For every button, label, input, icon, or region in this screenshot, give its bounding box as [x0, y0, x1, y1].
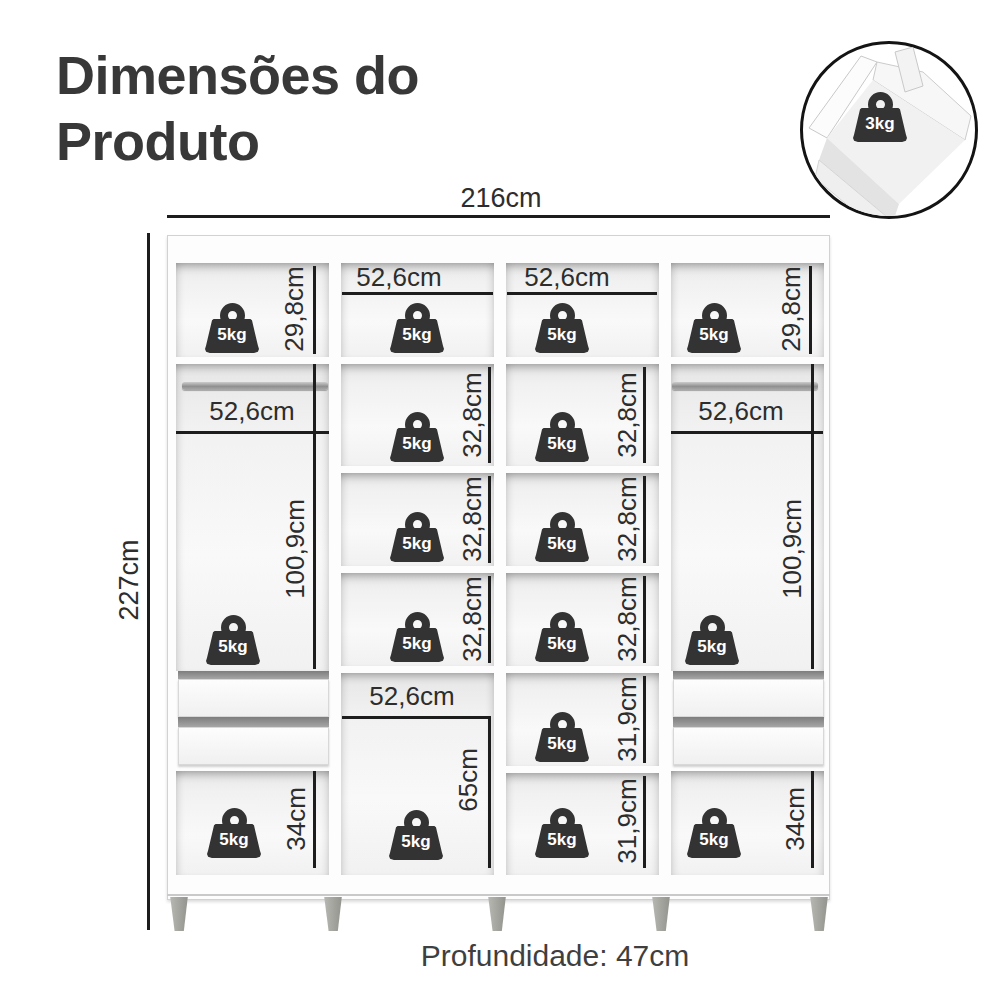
dim-row1-width: 52,6cm	[356, 262, 441, 293]
dim-row1-right-height: 29,8cm	[776, 266, 807, 351]
weight-icon: 5kg	[390, 412, 444, 462]
weight-icon: 5kg	[390, 303, 444, 353]
weight-icon: 5kg	[207, 808, 261, 858]
weight-label: 5kg	[390, 634, 444, 654]
dim-line	[167, 215, 830, 218]
weight-label: 5kg	[390, 434, 444, 454]
dim-line	[313, 364, 316, 669]
weight-icon: 5kg	[205, 303, 259, 353]
weight-label: 3kg	[853, 114, 907, 134]
weight-icon: 5kg	[535, 512, 589, 562]
weight-icon: 5kg	[206, 615, 260, 665]
weight-icon: 5kg	[535, 712, 589, 762]
drawer-front	[178, 679, 329, 717]
dim-line	[342, 716, 489, 719]
dim-line	[342, 292, 493, 295]
drawer-gap	[673, 671, 824, 679]
dim-line	[147, 233, 150, 930]
dim-overall-width: 216cm	[460, 183, 541, 214]
dim-line	[488, 367, 491, 463]
drawer-gap	[673, 717, 824, 727]
weight-icon: 5kg	[390, 512, 444, 562]
dim-shelf-height: 32,8cm	[612, 476, 643, 561]
weight-icon: 5kg	[535, 412, 589, 462]
dim-hang-width-right: 52,6cm	[698, 396, 783, 427]
dim-line	[488, 576, 491, 663]
weight-icon: 5kg	[389, 810, 443, 860]
weight-icon: 5kg	[685, 615, 739, 665]
dim-line	[643, 367, 646, 463]
weight-icon: 5kg	[687, 808, 741, 858]
dim-shelf-height: 32,8cm	[612, 576, 643, 661]
dim-line	[643, 676, 646, 763]
dim-line	[488, 716, 491, 868]
wardrobe-leg	[650, 897, 672, 931]
wardrobe-base-edge	[167, 894, 830, 896]
page-title-line1: Dimensões do	[56, 42, 419, 108]
product-dimensions-infographic: Dimensões do Produto 3kg 216cm 227cm	[0, 0, 1000, 1000]
weight-label: 5kg	[390, 325, 444, 345]
depth-label: Profundidade: 47cm	[421, 939, 690, 973]
drawer-gap	[178, 717, 329, 727]
dim-shelf-height: 32,8cm	[457, 372, 488, 457]
weight-icon: 5kg	[687, 303, 741, 353]
dim-row1-width: 52,6cm	[524, 262, 609, 293]
dim-row1-left-height: 29,8cm	[279, 266, 310, 351]
weight-icon: 5kg	[535, 303, 589, 353]
weight-label: 5kg	[685, 637, 739, 657]
weight-label: 5kg	[389, 832, 443, 852]
dim-line	[643, 776, 646, 868]
weight-label: 5kg	[535, 534, 589, 554]
weight-label: 5kg	[535, 734, 589, 754]
wardrobe-leg	[486, 897, 508, 931]
weight-label: 5kg	[687, 325, 741, 345]
dim-lower-height: 65cm	[453, 748, 484, 812]
drawer-front	[178, 727, 329, 765]
dim-line	[811, 364, 814, 669]
dim-shelf-height: 31,9cm	[612, 676, 643, 761]
dim-line	[811, 771, 814, 868]
dim-hang-height-right: 100,9cm	[777, 499, 808, 599]
dim-hang-width-left: 52,6cm	[209, 396, 294, 427]
wardrobe-leg	[808, 897, 830, 931]
page-title: Dimensões do Produto	[56, 42, 419, 174]
weight-label: 5kg	[535, 325, 589, 345]
weight-label: 5kg	[535, 434, 589, 454]
weight-icon: 5kg	[535, 612, 589, 662]
drawer-gap	[178, 671, 329, 679]
page-title-line2: Produto	[56, 108, 419, 174]
weight-label: 5kg	[535, 634, 589, 654]
dim-line	[313, 266, 316, 354]
dim-shelf-height: 32,8cm	[612, 372, 643, 457]
weight-label: 5kg	[390, 534, 444, 554]
wardrobe-leg	[168, 897, 190, 931]
dim-line	[809, 266, 812, 354]
dim-line	[313, 771, 316, 868]
dim-shelf-height: 31,9cm	[612, 778, 643, 863]
weight-label: 5kg	[205, 325, 259, 345]
dim-line	[507, 292, 657, 295]
weight-label: 5kg	[687, 830, 741, 850]
wardrobe-leg	[322, 897, 344, 931]
weight-label: 5kg	[206, 637, 260, 657]
dim-line	[643, 576, 646, 663]
drawer-front	[673, 679, 824, 717]
hang-rod	[672, 382, 818, 390]
weight-icon: 3kg	[853, 92, 907, 142]
weight-icon: 5kg	[390, 612, 444, 662]
dim-bottom-height-right: 34cm	[780, 787, 811, 851]
dim-line	[671, 431, 823, 434]
dim-hang-height-left: 100,9cm	[280, 499, 311, 599]
dim-overall-height: 227cm	[114, 539, 145, 620]
dim-lower-width: 52,6cm	[369, 681, 454, 712]
drawer-front	[673, 727, 824, 765]
dim-bottom-height-left: 34cm	[281, 787, 312, 851]
weight-icon: 5kg	[535, 808, 589, 858]
drawer-capacity-inset: 3kg	[800, 41, 978, 219]
dim-line	[176, 431, 329, 434]
dim-line	[643, 476, 646, 563]
weight-label: 5kg	[535, 830, 589, 850]
dim-line	[488, 476, 491, 563]
dim-shelf-height: 32,8cm	[457, 476, 488, 561]
weight-label: 5kg	[207, 830, 261, 850]
dim-shelf-height: 32,8cm	[457, 576, 488, 661]
hang-rod	[182, 382, 328, 390]
